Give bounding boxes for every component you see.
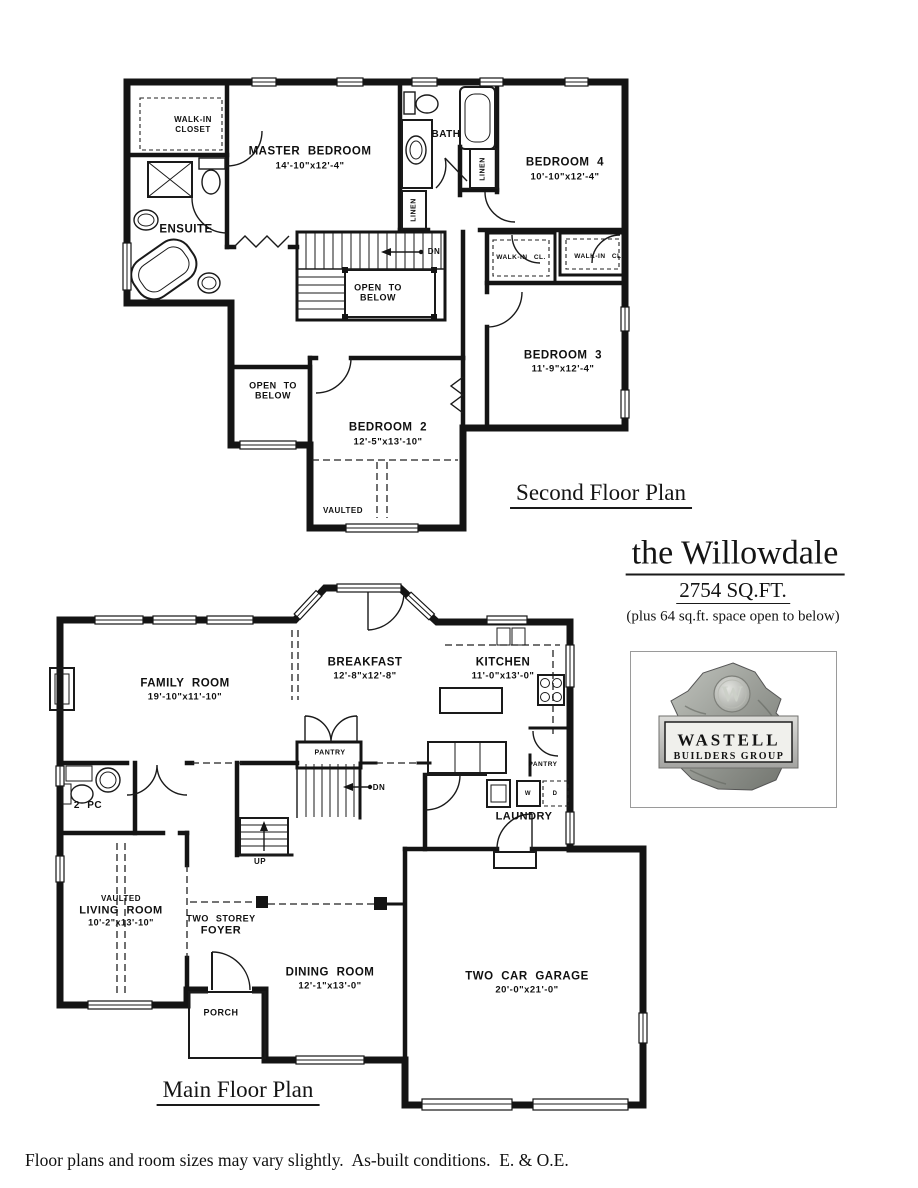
bedroom2-label: BEDROOM 2 <box>349 422 427 434</box>
kitchen-label: KITCHEN <box>476 657 531 669</box>
logo-subtitle: BUILDERS GROUP <box>674 752 785 762</box>
pantry-left-label: PANTRY <box>315 750 346 757</box>
living-room-vaulted-label: VAULTED <box>101 895 141 903</box>
walk-in-cl-right-label: WALK-IN CL. <box>574 254 624 261</box>
open-to-below-stairs-line1: OPEN TO <box>354 284 402 293</box>
walk-in-closet-label-line1: WALK-IN <box>174 116 212 124</box>
dn-label-main-floor: DN <box>373 784 386 792</box>
bedroom2-dims: 12'-5"x13'-10" <box>353 437 422 447</box>
bedroom4-dims: 10'-10"x12'-4" <box>530 172 599 182</box>
master-bedroom-dims: 14'-10"x12'-4" <box>275 161 344 171</box>
open-to-below-stairs-line2: BELOW <box>360 294 396 303</box>
up-label: UP <box>254 858 266 866</box>
dn-label-second-floor: DN <box>428 248 441 256</box>
washer-label: W <box>525 791 531 797</box>
family-room-dims: 19'-10"x11'-10" <box>148 692 222 702</box>
open-to-below-left-line2: BELOW <box>255 392 291 401</box>
second-floor-plan-title: Second Floor Plan <box>510 481 692 509</box>
porch-label: PORCH <box>203 1009 238 1018</box>
open-to-below-left-line1: OPEN TO <box>249 382 297 391</box>
breakfast-dims: 12'-8"x12'-8" <box>333 671 396 681</box>
bedroom4-label: BEDROOM 4 <box>526 157 604 169</box>
breakfast-label: BREAKFAST <box>328 657 403 669</box>
ensuite-label: ENSUITE <box>159 224 212 236</box>
kitchen-dims: 11'-0"x13'-0" <box>472 671 535 681</box>
master-bedroom-label: MASTER BEDROOM <box>249 146 372 158</box>
living-room-dims: 10'-2"x13'-10" <box>88 919 154 928</box>
walk-in-closet-label-line2: CLOSET <box>175 126 210 134</box>
two-pc-label: 2 PC <box>74 801 102 811</box>
model-name-title: the Willowdale <box>626 537 845 576</box>
family-room-label: FAMILY ROOM <box>140 678 229 690</box>
second-floor-walls <box>123 78 629 532</box>
main-floor-plan-title: Main Floor Plan <box>157 1078 320 1106</box>
linen-lower-label: LINEN <box>411 198 418 222</box>
garage-label: TWO CAR GARAGE <box>465 971 589 983</box>
bedroom3-label: BEDROOM 3 <box>524 350 602 362</box>
laundry-label: LAUNDRY <box>496 812 553 823</box>
bedroom3-dims: 11'-9"x12'-4" <box>532 364 595 374</box>
dining-room-dims: 12'-1"x13'-0" <box>298 981 361 991</box>
foyer-label-line2: FOYER <box>201 926 241 937</box>
open-to-below-note: (plus 64 sq.ft. space open to below) <box>626 610 839 625</box>
living-room-label: LIVING ROOM <box>79 906 162 917</box>
linen-upper-label: LINEN <box>480 157 487 181</box>
vaulted-label-second-floor: VAULTED <box>323 507 363 515</box>
builder-logo-frame <box>630 651 837 808</box>
disclaimer-text: Floor plans and room sizes may vary slig… <box>25 1150 569 1171</box>
garage-dims: 20'-0"x21'-0" <box>495 985 558 995</box>
dining-room-label: DINING ROOM <box>286 967 375 979</box>
square-footage: 2754 SQ.FT. <box>676 580 790 604</box>
foyer-label-line1: TWO STOREY <box>186 915 255 924</box>
dryer-label: D <box>553 791 558 797</box>
logo-name: WASTELL <box>677 732 780 749</box>
floor-plan-page: WALK-IN CLOSET MASTER BEDROOM 14'-10"x12… <box>0 0 918 1188</box>
pantry-right-label: PANTRY <box>529 762 558 769</box>
logo-monogram: W <box>721 683 743 705</box>
walk-in-cl-left-label: WALK-IN CL. <box>496 255 546 262</box>
bath-label: BATH <box>431 130 460 140</box>
